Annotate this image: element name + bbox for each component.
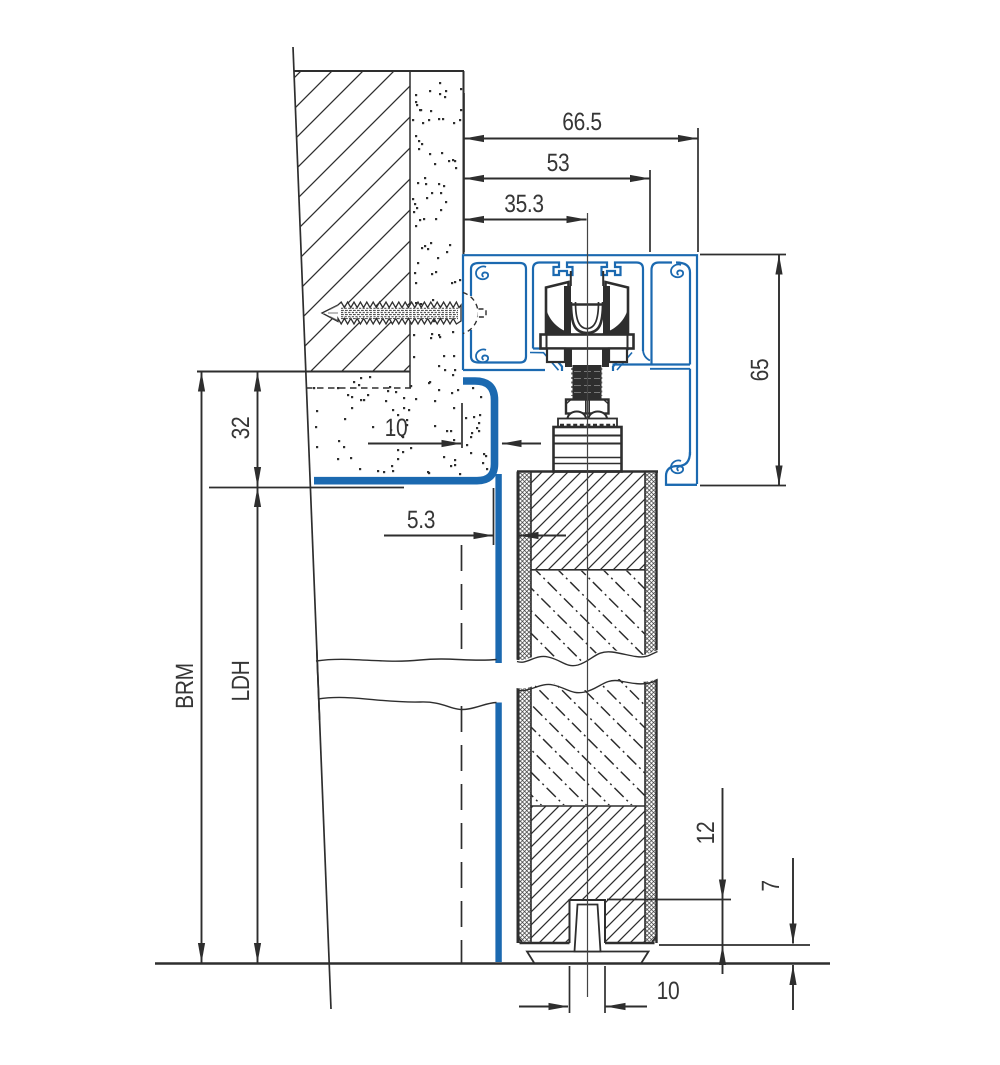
svg-text:35.3: 35.3 [504,190,544,218]
svg-text:10: 10 [657,977,680,1005]
svg-text:65: 65 [746,359,774,382]
svg-text:53: 53 [547,149,570,177]
svg-text:32: 32 [227,417,255,440]
svg-text:10: 10 [385,414,408,442]
svg-text:LDH: LDH [227,660,255,701]
svg-text:BRM: BRM [171,663,199,709]
svg-text:12: 12 [692,822,720,845]
svg-text:66.5: 66.5 [562,108,602,136]
svg-text:7: 7 [757,880,785,891]
svg-text:5.3: 5.3 [407,506,435,534]
